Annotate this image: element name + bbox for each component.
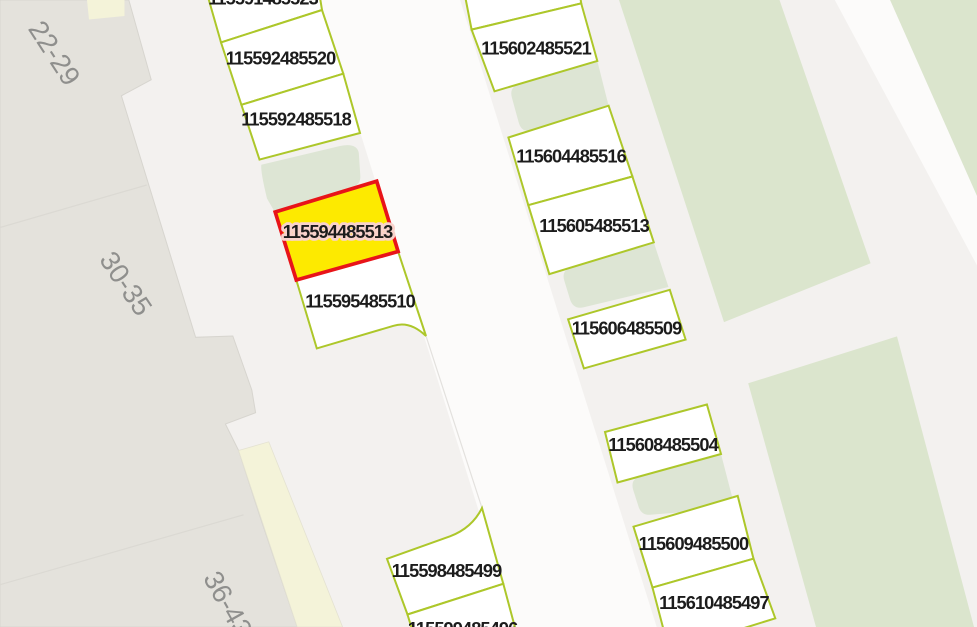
svg-text:115594485513: 115594485513 [283, 222, 393, 242]
svg-text:115609485500: 115609485500 [639, 534, 749, 554]
svg-text:115604485516: 115604485516 [516, 147, 626, 167]
svg-text:115599485496: 115599485496 [408, 619, 518, 627]
svg-text:115591485523: 115591485523 [208, 0, 318, 9]
svg-text:115592485520: 115592485520 [226, 49, 336, 69]
svg-text:115592485518: 115592485518 [241, 110, 351, 130]
svg-text:115606485509: 115606485509 [572, 319, 682, 339]
svg-text:115610485497: 115610485497 [659, 593, 769, 613]
svg-text:115605485513: 115605485513 [539, 216, 649, 236]
svg-text:115598485499: 115598485499 [392, 561, 502, 581]
svg-text:115595485510: 115595485510 [305, 291, 415, 311]
svg-text:115608485504: 115608485504 [608, 435, 719, 455]
svg-text:115602485521: 115602485521 [481, 39, 591, 59]
